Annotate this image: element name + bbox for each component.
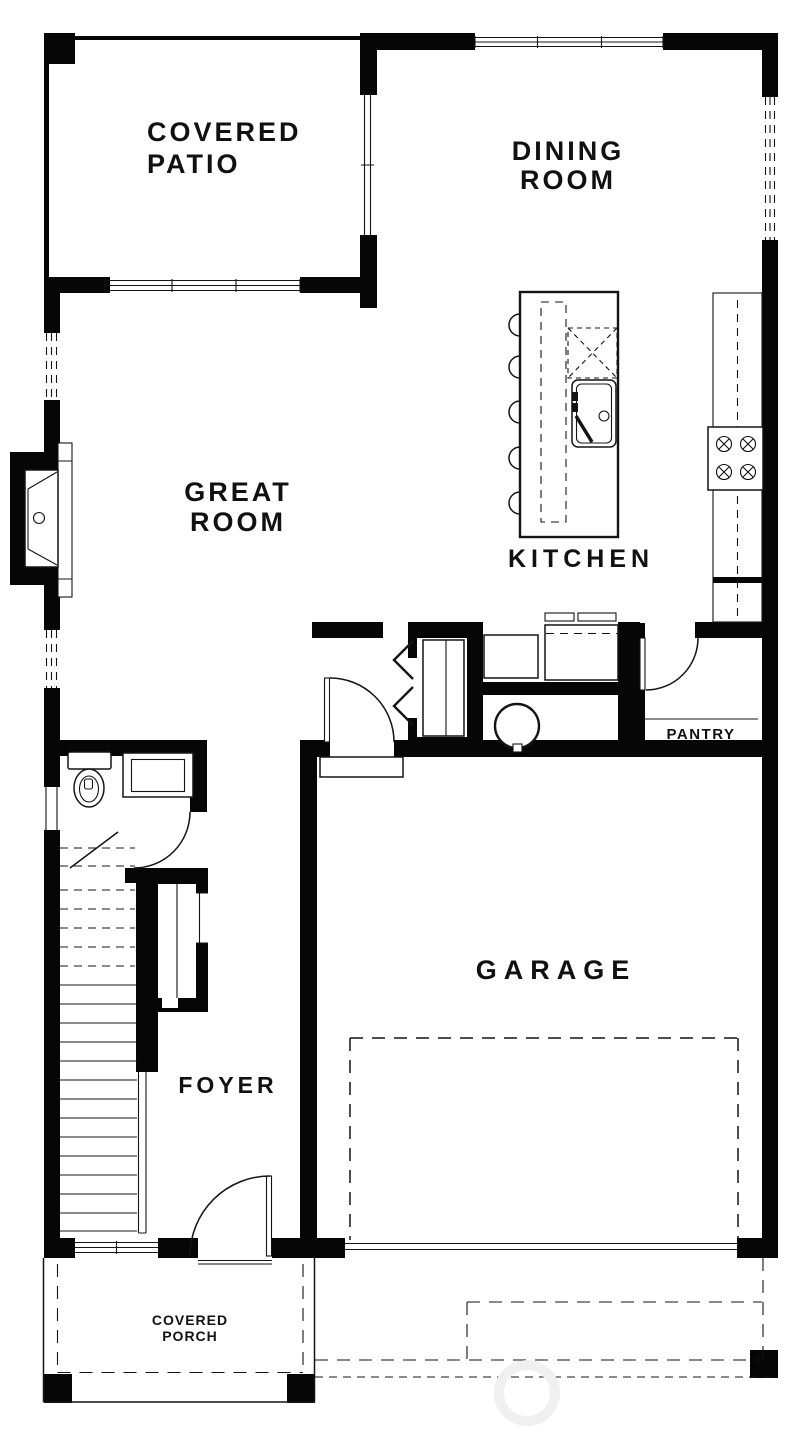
powder-room-door: [134, 812, 190, 868]
room-label-garage: GARAGE: [476, 955, 637, 985]
garage-overhead-door: [345, 1244, 737, 1250]
garage-entry-door: [325, 678, 395, 742]
room-label-pantry: PANTRY: [667, 726, 736, 743]
room-label-foyer: FOYER: [178, 1072, 277, 1098]
room-label-great-room-1: GREAT: [184, 477, 292, 507]
patio-slider-door: [361, 95, 374, 235]
room-label-covered-porch-2: PORCH: [162, 1328, 218, 1344]
dining-dashed-window: [766, 97, 775, 240]
front-door: [190, 1176, 272, 1256]
powder-room-window: [46, 787, 57, 830]
dining-window: [475, 36, 663, 48]
room-label-dining-1: DINING: [512, 136, 625, 166]
floor-plan-page: COVERED PATIO DINING ROOM GREAT ROOM KIT…: [0, 0, 803, 1440]
room-label-great-room-2: ROOM: [190, 507, 286, 537]
patio-window: [105, 279, 300, 292]
room-label-covered-patio-2: PATIO: [147, 149, 241, 179]
driveway-dashed-line: [315, 1258, 778, 1377]
porch-window: [75, 1241, 158, 1254]
watermark-circle: [499, 1365, 555, 1421]
pantry-door: [640, 638, 698, 690]
garage-step: [320, 757, 403, 777]
garage-ceiling-dashed-line: [350, 1038, 738, 1240]
room-label-kitchen: KITCHEN: [508, 545, 654, 573]
interior-walls: [44, 577, 778, 1403]
bar-stools: [509, 314, 520, 514]
front-door-threshold: [198, 1261, 272, 1265]
staircase: [60, 832, 146, 1233]
room-label-dining-2: ROOM: [520, 165, 616, 195]
vanity-sink: [123, 753, 193, 797]
room-label-covered-patio-1: COVERED: [147, 117, 302, 147]
mudroom-closet: [423, 640, 464, 736]
fireplace: [10, 443, 72, 597]
range-cooktop: [708, 427, 763, 490]
room-label-covered-porch-1: COVERED: [152, 1312, 228, 1328]
toilet: [68, 752, 111, 807]
laundry-appliances: [484, 613, 618, 680]
room-labels: COVERED PATIO DINING ROOM GREAT ROOM KIT…: [147, 117, 736, 1344]
